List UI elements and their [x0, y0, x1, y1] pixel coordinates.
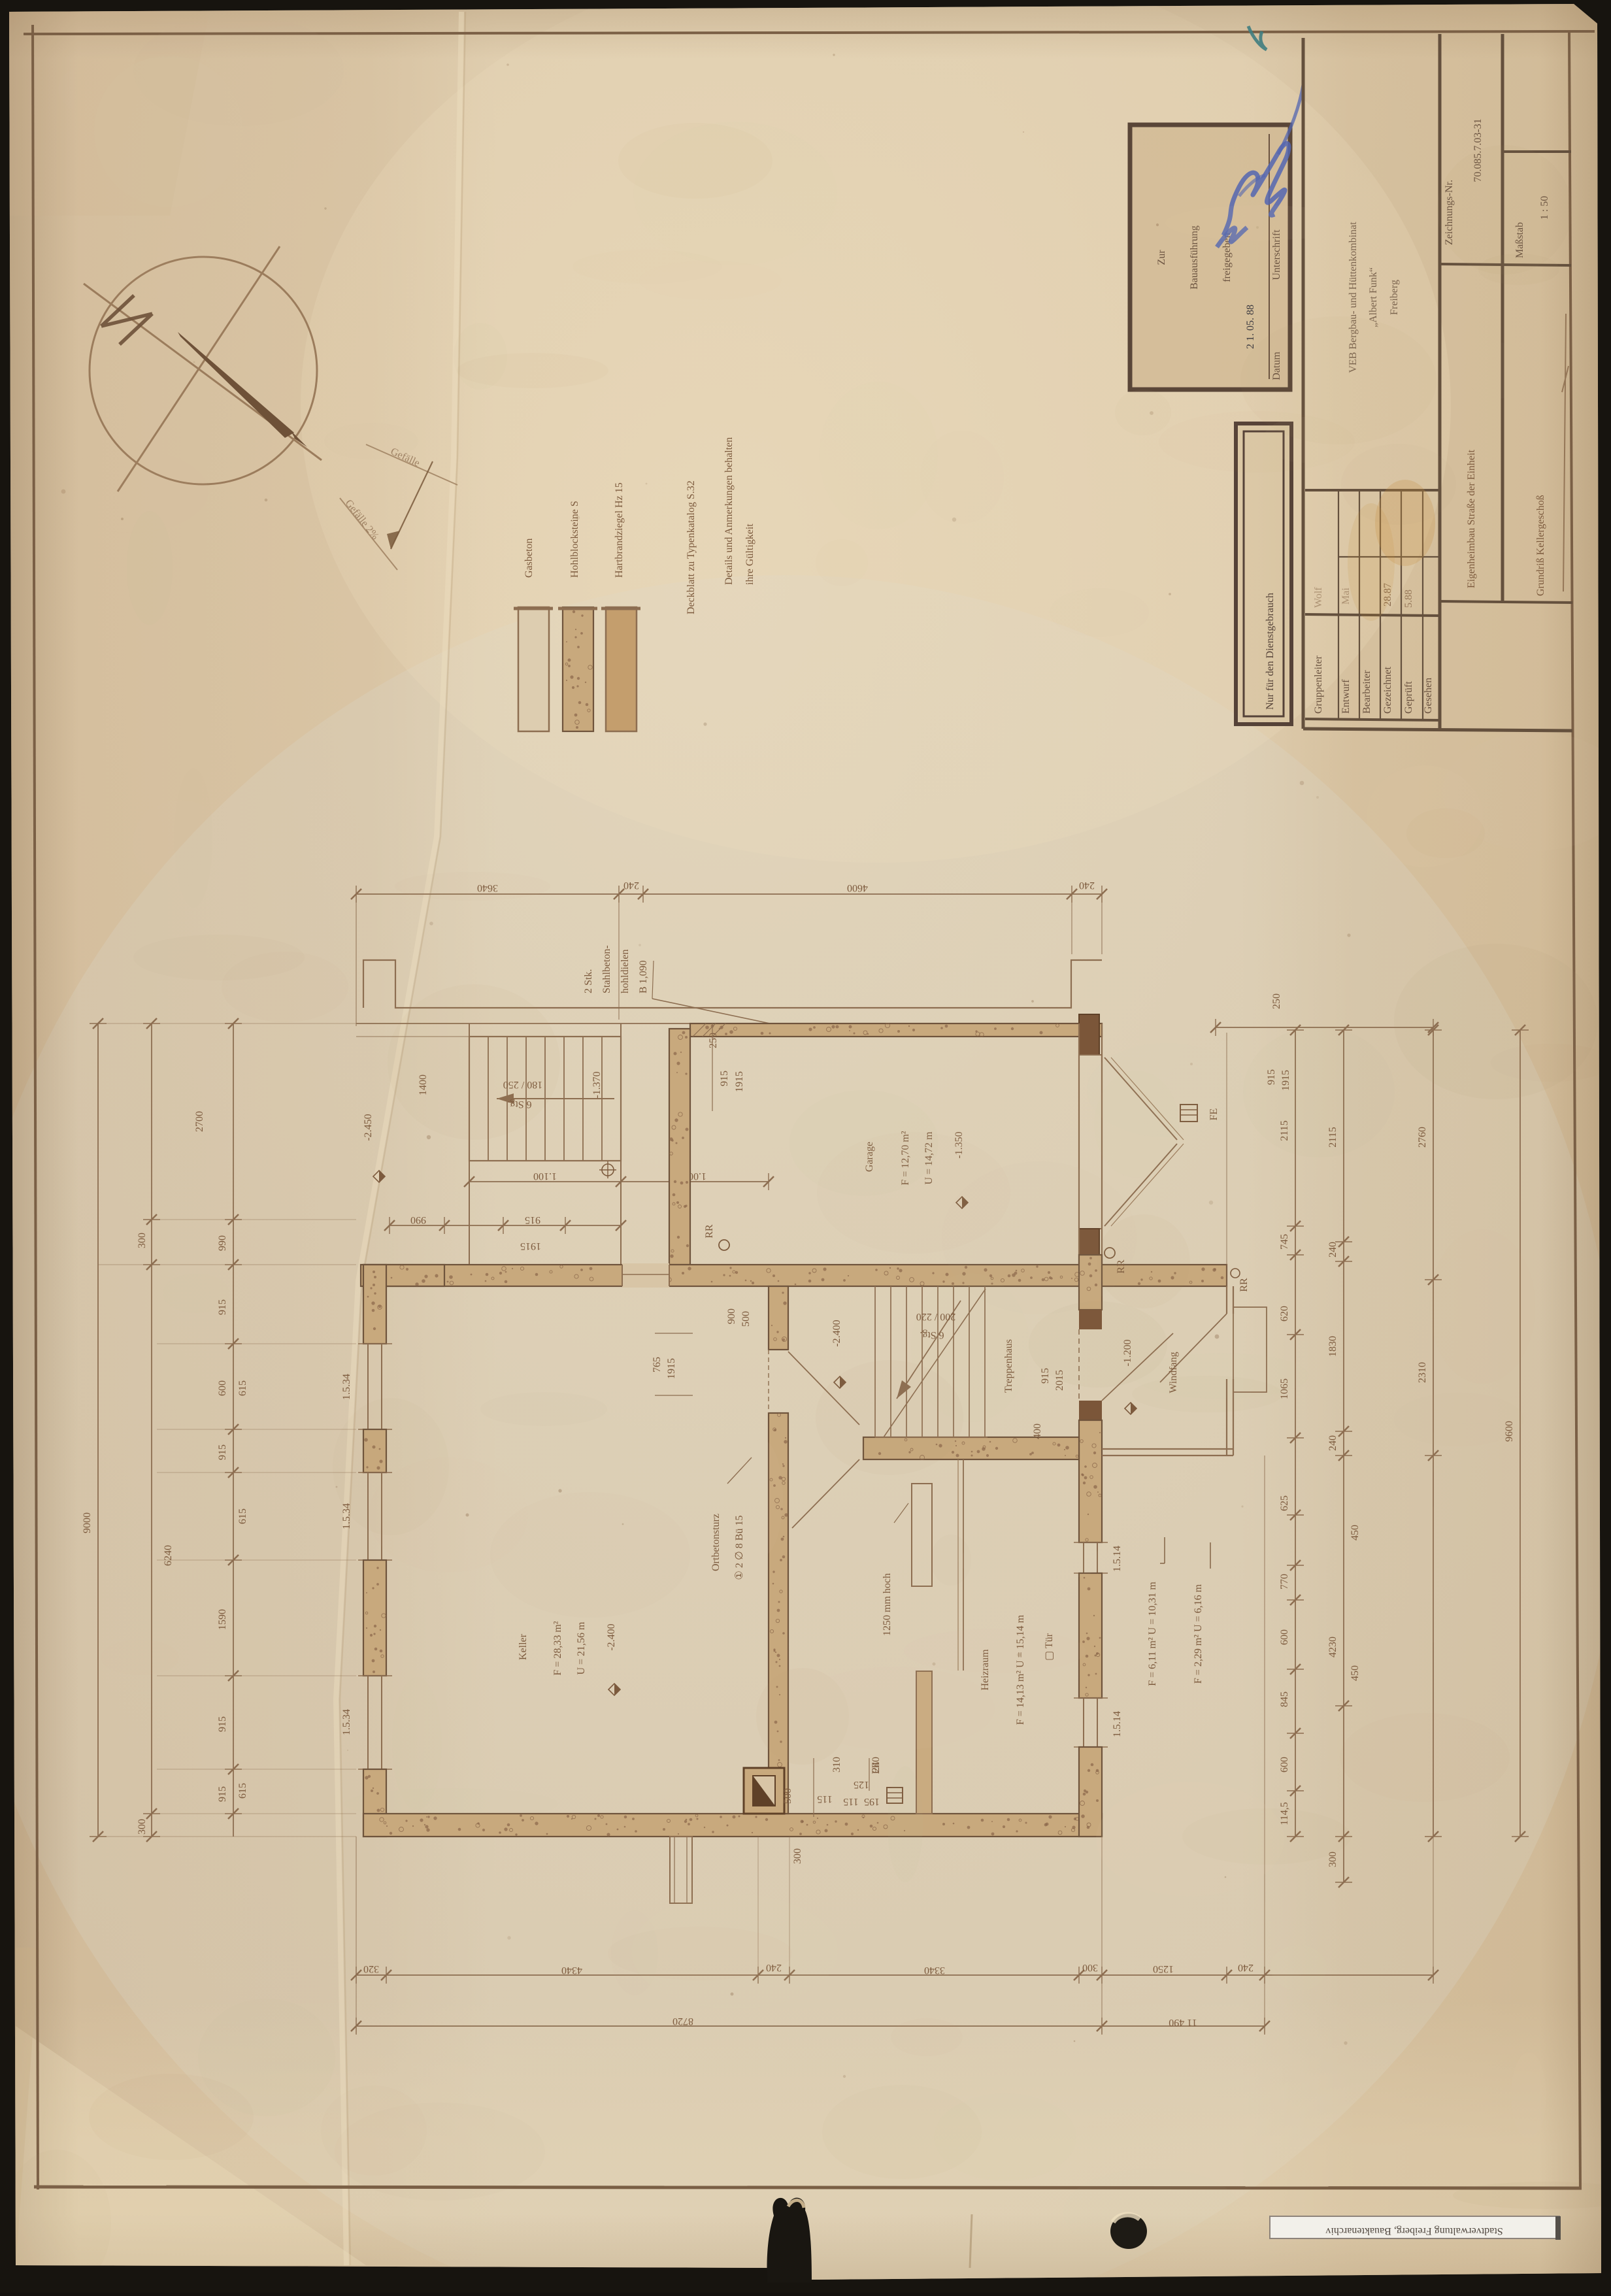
svg-text:F = 2,29 m² U = 6,16 m: F = 2,29 m² U = 6,16 m	[1193, 1584, 1204, 1684]
svg-text:-2.450: -2.450	[363, 1114, 374, 1140]
svg-text:ihre Gültigkeit: ihre Gültigkeit	[744, 524, 756, 585]
svg-text:Bearbeiter: Bearbeiter	[1361, 670, 1372, 714]
svg-text:915: 915	[525, 1214, 540, 1225]
svg-text:1.100: 1.100	[533, 1171, 557, 1182]
svg-text:Details und Anmerkungen behalt: Details und Anmerkungen behalten	[723, 437, 735, 585]
svg-text:2 Stk.: 2 Stk.	[583, 969, 594, 993]
svg-text:Stahlbeton-: Stahlbeton-	[601, 945, 612, 993]
svg-text:4340: 4340	[561, 1965, 582, 1976]
svg-text:1590: 1590	[217, 1609, 228, 1630]
svg-text:240: 240	[623, 880, 639, 891]
svg-text:Gruppenleiter: Gruppenleiter	[1313, 655, 1324, 714]
svg-text:2760: 2760	[1417, 1127, 1428, 1148]
svg-text:-2.400: -2.400	[831, 1320, 842, 1346]
svg-text:4600: 4600	[847, 882, 868, 893]
svg-text:Ortbetonsturz: Ortbetonsturz	[710, 1514, 722, 1571]
svg-text:1915: 1915	[734, 1071, 745, 1092]
svg-text:Deckblatt zu Typenkatalog S: Deckblatt zu Typenkatalog S.32	[686, 480, 697, 614]
svg-text:8720: 8720	[673, 2016, 693, 2027]
svg-text:600: 600	[1279, 1629, 1290, 1645]
svg-text:Wolf: Wolf	[1313, 587, 1324, 608]
svg-text:615: 615	[237, 1783, 248, 1799]
svg-text:915: 915	[719, 1071, 730, 1086]
svg-text:Hartbrandziegel Hz 15: Hartbrandziegel Hz 15	[614, 482, 625, 578]
svg-text:F = 6,11 m² U = 10,31 m: F = 6,11 m² U = 10,31 m	[1147, 1582, 1158, 1686]
svg-text:915: 915	[217, 1444, 228, 1460]
svg-text:450: 450	[1350, 1525, 1361, 1540]
svg-text:1.5.34: 1.5.34	[341, 1374, 352, 1400]
svg-text:770: 770	[1279, 1574, 1290, 1589]
svg-text:1.5.14: 1.5.14	[1112, 1711, 1123, 1737]
svg-text:F = 28,33 m²: F = 28,33 m²	[552, 1621, 563, 1675]
svg-text:Zur: Zur	[1156, 250, 1167, 265]
svg-text:3340: 3340	[924, 1965, 945, 1976]
svg-text:765: 765	[652, 1357, 663, 1373]
svg-text:6240: 6240	[163, 1545, 174, 1566]
svg-text:Mai: Mai	[1340, 588, 1352, 605]
svg-text:2310: 2310	[1417, 1362, 1428, 1383]
svg-text:300: 300	[137, 1819, 148, 1835]
svg-text:1250 mm hoch: 1250 mm hoch	[882, 1573, 893, 1636]
svg-text:RR: RR	[1238, 1278, 1250, 1292]
svg-text:Gezeichnet: Gezeichnet	[1382, 666, 1393, 714]
svg-text:615: 615	[237, 1380, 248, 1396]
svg-text:4230: 4230	[1327, 1637, 1338, 1657]
svg-text:-1.370: -1.370	[591, 1071, 603, 1098]
svg-text:1.5.34: 1.5.34	[341, 1709, 352, 1735]
svg-text:620: 620	[1279, 1306, 1290, 1322]
svg-text:125: 125	[854, 1779, 869, 1790]
svg-text:1915: 1915	[520, 1240, 541, 1252]
svg-text:Hohlblocksteine S: Hohlblocksteine S	[569, 501, 580, 578]
svg-text:195: 195	[864, 1796, 880, 1807]
svg-text:500: 500	[740, 1311, 752, 1327]
svg-text:„Albert Funk“: „Albert Funk“	[1368, 267, 1379, 327]
svg-text:845: 845	[1279, 1691, 1290, 1707]
svg-text:500: 500	[782, 1788, 793, 1804]
svg-text:RR: RR	[704, 1224, 715, 1239]
svg-text:Geprüft: Geprüft	[1403, 681, 1414, 714]
svg-text:915: 915	[217, 1786, 228, 1802]
svg-text:Keller: Keller	[518, 1633, 529, 1660]
svg-text:B 1,090: B 1,090	[638, 960, 649, 993]
svg-text:240: 240	[871, 1757, 882, 1772]
svg-text:600: 600	[1279, 1757, 1290, 1772]
svg-text:915: 915	[217, 1716, 228, 1732]
svg-text:2 1. 05. 88: 2 1. 05. 88	[1245, 305, 1256, 349]
svg-text:11 490: 11 490	[1169, 2017, 1197, 2028]
svg-text:115: 115	[843, 1796, 858, 1807]
svg-text:U = 21,56 m: U = 21,56 m	[576, 1622, 587, 1675]
svg-text:Entwurf: Entwurf	[1340, 679, 1352, 714]
svg-text:1830: 1830	[1327, 1336, 1338, 1357]
svg-text:320: 320	[363, 1963, 379, 1974]
svg-text:250: 250	[708, 1033, 719, 1048]
svg-text:900: 900	[726, 1308, 737, 1324]
svg-text:745: 745	[1279, 1234, 1290, 1250]
svg-text:625: 625	[1279, 1495, 1290, 1511]
svg-text:450: 450	[1350, 1665, 1361, 1681]
svg-text:240: 240	[1238, 1962, 1254, 1973]
svg-text:9000: 9000	[82, 1512, 93, 1533]
svg-text:Grundriß Kellergeschoß: Grundriß Kellergeschoß	[1535, 495, 1546, 596]
svg-text:990: 990	[217, 1235, 228, 1251]
svg-text:310: 310	[831, 1757, 842, 1772]
svg-text:Freiberg: Freiberg	[1389, 280, 1400, 315]
svg-text:Gasbeton: Gasbeton	[523, 539, 535, 578]
svg-text:Gesehen: Gesehen	[1423, 678, 1434, 714]
svg-text:615: 615	[237, 1508, 248, 1524]
svg-text:Eigenheimbau Straße der Einhe: Eigenheimbau Straße der Einheit	[1466, 450, 1477, 588]
svg-text:990: 990	[410, 1214, 426, 1225]
svg-text:115: 115	[817, 1793, 832, 1805]
svg-text:300: 300	[137, 1233, 148, 1248]
svg-text:Stadtverwaltung Freiberg, Baua: Stadtverwaltung Freiberg, Bauaktenarchiv	[1325, 2225, 1503, 2237]
svg-text:600: 600	[217, 1380, 228, 1396]
svg-text:400: 400	[1032, 1423, 1043, 1439]
svg-text:300: 300	[1082, 1962, 1098, 1973]
svg-text:250: 250	[1271, 993, 1282, 1009]
svg-text:240: 240	[1079, 880, 1095, 891]
svg-text:hohldielen: hohldielen	[620, 949, 631, 993]
svg-text:-2.400: -2.400	[606, 1623, 617, 1650]
svg-text:1250: 1250	[1153, 1963, 1174, 1974]
svg-text:1915: 1915	[666, 1358, 677, 1379]
svg-text:5.88: 5.88	[1403, 590, 1414, 608]
svg-text:240: 240	[1327, 1242, 1338, 1257]
svg-text:2700: 2700	[194, 1111, 205, 1132]
svg-text:Nur für den Dienstgebrauch: Nur für den Dienstgebrauch	[1265, 593, 1276, 710]
svg-text:240: 240	[1327, 1435, 1338, 1451]
svg-text:300: 300	[792, 1848, 803, 1864]
svg-text:1.5.14: 1.5.14	[1112, 1546, 1123, 1572]
